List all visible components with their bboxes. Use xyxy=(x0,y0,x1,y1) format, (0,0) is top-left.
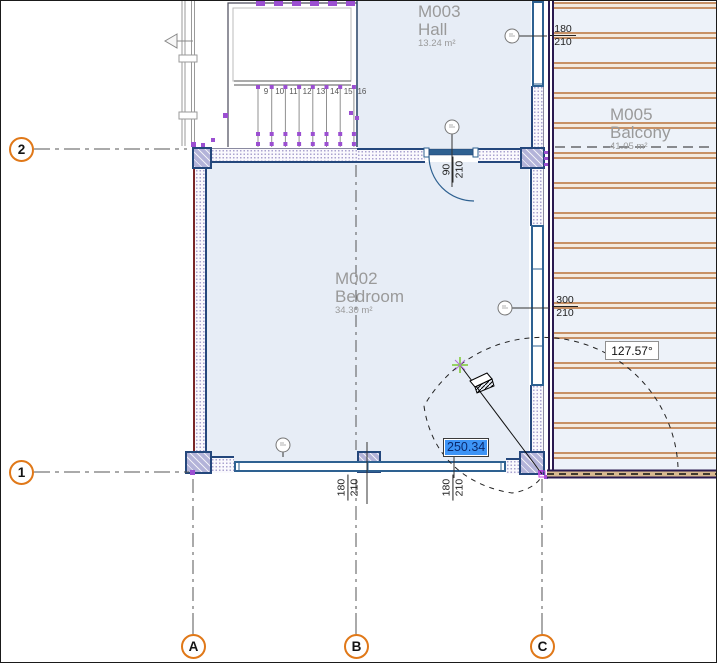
room-id: M003 xyxy=(418,3,461,21)
dim-height: 210 xyxy=(556,307,574,319)
room-stamp-balcony[interactable]: M005 Balcony 41.05 m² xyxy=(610,106,670,152)
measure-cursor-icon xyxy=(470,373,494,393)
dim-window-bottom-2[interactable]: 180 210 xyxy=(440,469,465,507)
stair-tread-number: 11 xyxy=(287,87,299,96)
room-id: M005 xyxy=(610,106,670,124)
tracker-angle-value: 127.57° xyxy=(611,344,653,358)
stair-tread-number: 12 xyxy=(301,87,313,96)
grid-bubble-2[interactable]: 2 xyxy=(9,137,34,162)
grid-label: C xyxy=(538,639,548,654)
grid-label: 2 xyxy=(18,142,26,157)
grid-label: 1 xyxy=(18,465,26,480)
stair-tread-number: 10 xyxy=(274,87,286,96)
dim-height: 210 xyxy=(554,36,572,48)
dim-width: 180 xyxy=(335,479,347,497)
selection-handles[interactable] xyxy=(190,1,548,479)
tracker-distance-value: 250.34 xyxy=(445,440,487,455)
room-name: Balcony xyxy=(610,124,670,142)
grid-label: A xyxy=(189,639,199,654)
stair-tread-number: 15 xyxy=(342,87,354,96)
dim-window-bottom-1[interactable]: 180 210 xyxy=(335,469,360,507)
dim-width: 300 xyxy=(556,294,574,306)
dim-door-top[interactable]: 90 210 xyxy=(440,151,465,189)
stair-tread-number: 14 xyxy=(329,87,341,96)
room-area: 34.30 m² xyxy=(335,306,404,316)
room-name: Hall xyxy=(418,21,461,39)
room-stamp-bedroom[interactable]: M002 Bedroom 34.30 m² xyxy=(335,270,404,316)
grid-bubble-B[interactable]: B xyxy=(344,634,369,659)
dim-window-top-right[interactable]: 180 210 xyxy=(547,23,579,48)
dim-window-right[interactable]: 300 210 xyxy=(549,294,581,319)
tracker-angle-readout: 127.57° xyxy=(605,341,659,360)
room-stamp-hall[interactable]: M003 Hall 13.24 m² xyxy=(418,3,461,49)
floor-plan-canvas[interactable]: M003 Hall 13.24 m² M002 Bedroom 34.30 m²… xyxy=(0,0,717,663)
dim-height: 210 xyxy=(453,161,465,179)
plan-linework xyxy=(1,1,717,663)
tracker-distance-input[interactable]: 250.34 xyxy=(443,438,489,457)
dim-width: 180 xyxy=(440,479,452,497)
grid-lines xyxy=(34,147,715,634)
stair-tread-number: 9 xyxy=(260,87,272,96)
stair-direction-arrow-icon xyxy=(165,34,193,48)
snap-crosshair-icon xyxy=(452,357,468,373)
grid-bubble-C[interactable]: C xyxy=(530,634,555,659)
room-name: Bedroom xyxy=(335,288,404,306)
stair-tread-number: 13 xyxy=(315,87,327,96)
dim-height: 210 xyxy=(349,479,361,497)
dimension-lines xyxy=(283,36,549,504)
grid-bubble-A[interactable]: A xyxy=(181,634,206,659)
dim-width: 90 xyxy=(440,164,452,176)
room-id: M002 xyxy=(335,270,404,288)
room-area: 13.24 m² xyxy=(418,39,461,49)
room-area: 41.05 m² xyxy=(610,142,670,152)
balcony-slab-edge[interactable] xyxy=(547,1,717,478)
stair-tread-number: 16 xyxy=(356,87,368,96)
dim-height: 210 xyxy=(454,479,466,497)
dim-width: 180 xyxy=(554,23,572,35)
grid-bubble-1[interactable]: 1 xyxy=(9,460,34,485)
grid-label: B xyxy=(352,639,362,654)
